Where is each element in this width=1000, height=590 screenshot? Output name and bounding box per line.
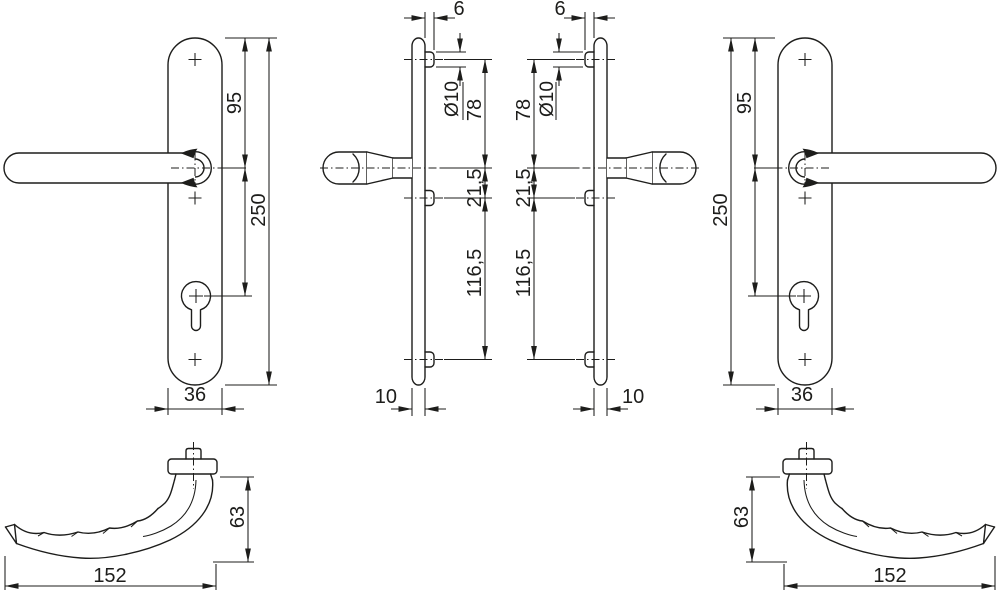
dim-label-10-right: 10 — [622, 386, 644, 408]
dim-label-d10-left: Ø10 — [442, 81, 463, 117]
top-view-right — [746, 442, 995, 590]
dim-label-116-5-left: 116,5 — [464, 249, 486, 298]
dim-label-6-right: 6 — [554, 0, 565, 20]
dim-label-152-right: 152 — [873, 565, 906, 587]
dim-label-250-left: 250 — [248, 193, 270, 226]
dim-label-6-left: 6 — [453, 0, 464, 20]
top-view-left — [5, 442, 254, 590]
dim-label-21-5-left: 21,5 — [464, 169, 486, 208]
dim-label-78-left: 78 — [464, 99, 486, 121]
side-view-right — [527, 12, 699, 416]
dim-label-d10-right: Ø10 — [537, 81, 558, 117]
dim-label-36-right: 36 — [791, 384, 813, 406]
technical-drawing-canvas: 95 250 36 95 250 36 6 Ø10 78 21,5 116,5 … — [0, 0, 1000, 590]
dim-label-63-right: 63 — [731, 506, 753, 528]
dim-label-152-left: 152 — [93, 565, 126, 587]
dim-label-10-left: 10 — [375, 386, 397, 408]
dim-label-63-left: 63 — [227, 506, 249, 528]
dim-label-78-right: 78 — [513, 99, 535, 121]
dim-label-36-left: 36 — [184, 384, 206, 406]
technical-drawing-page: 95 250 36 95 250 36 6 Ø10 78 21,5 116,5 … — [0, 0, 1000, 590]
side-view-left — [320, 12, 492, 416]
dim-label-21-5-right: 21,5 — [513, 169, 535, 208]
dim-label-116-5-right: 116,5 — [513, 249, 535, 298]
dim-label-95-right: 95 — [734, 92, 756, 114]
dim-label-250-right: 250 — [710, 193, 732, 226]
dim-label-95-left: 95 — [224, 92, 246, 114]
front-view-right — [723, 38, 996, 415]
